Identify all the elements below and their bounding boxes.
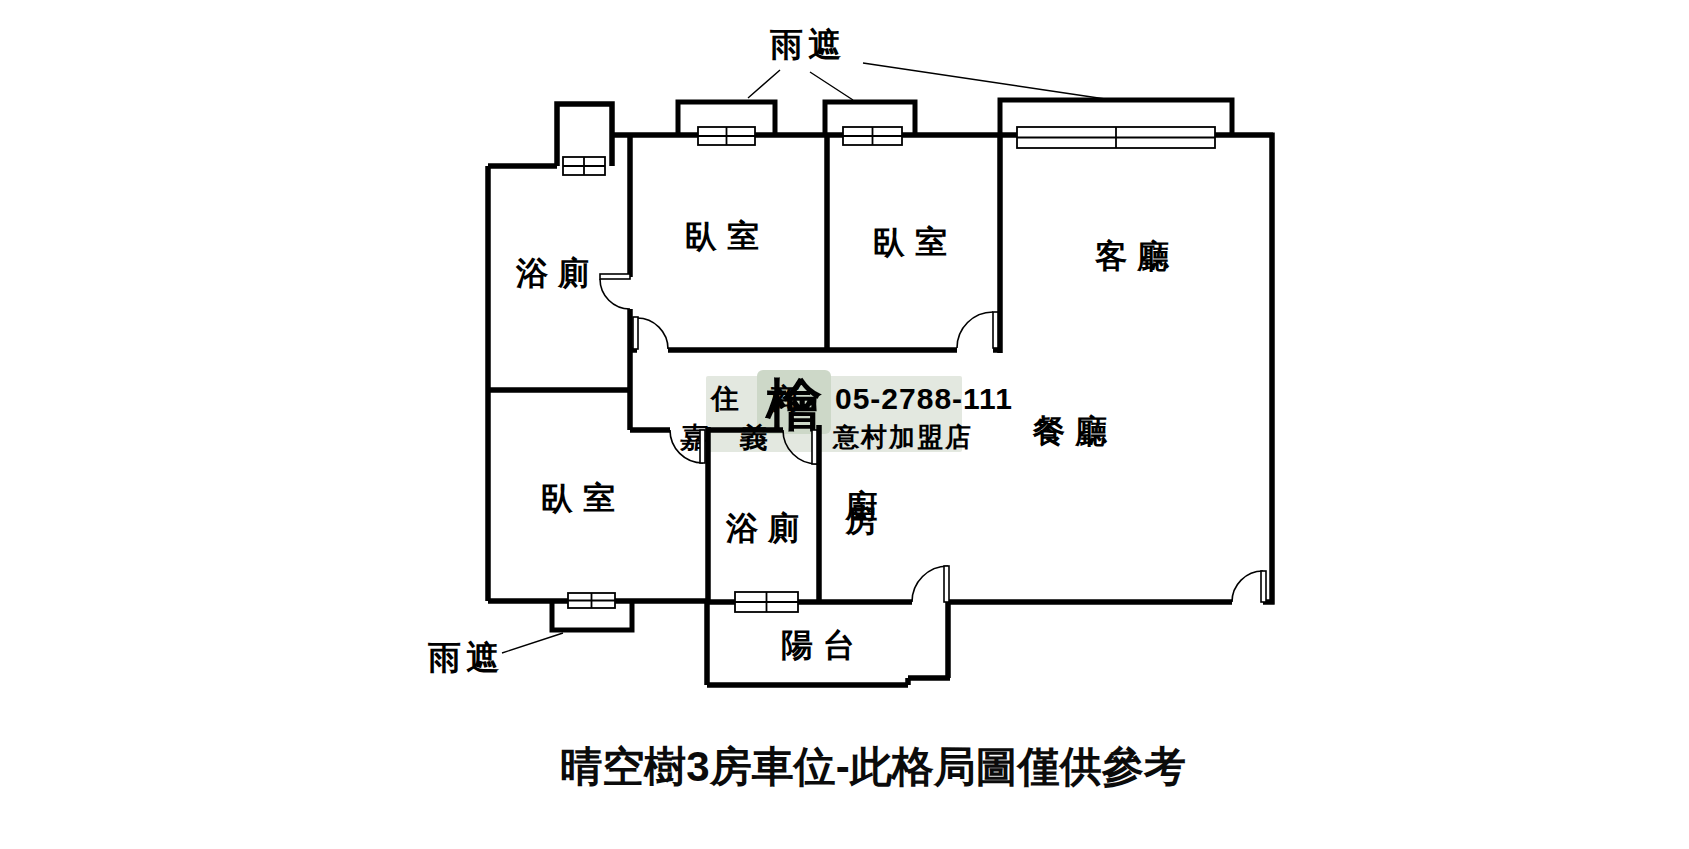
window-living-room [1017,127,1215,148]
door-arc-bedroom-top-left [637,318,668,349]
door-leaf-bedroom-top-left [633,317,638,349]
label-bedroom-top-right: 臥室 [873,224,957,260]
label-bedroom-bottom: 臥室 [541,480,625,516]
label-rain-shelter-top: 雨遮 [769,26,846,63]
watermark: 檜 住 商 05-2788-111 嘉 義 意村加盟店 [679,370,1013,453]
door-leaf-entry [1261,571,1266,602]
rain-shelter-outlines [552,100,1232,630]
label-kitchen: 廚房 [844,462,880,536]
label-bathroom-top: 浴廁 [515,255,600,291]
window-bathroom-bottom [735,592,798,612]
door-leaf-balcony [944,566,949,602]
label-rain-shelter-bottom: 雨遮 [427,639,504,676]
window-bathroom-top [563,157,605,175]
door-leaf-bathroom-bottom [812,430,817,464]
watermark-brand-row1: 住 商 [709,383,811,414]
label-bedroom-top-left: 臥室 [685,218,769,254]
door-arc-entry [1232,571,1263,602]
window-bedroom-top-right [843,127,902,145]
door-arc-bathroom-top [600,279,630,309]
watermark-brand-row2: 嘉 義 [679,422,781,453]
window-bedroom-bottom [568,593,615,608]
label-balcony: 陽台 [781,627,865,663]
label-dining-room: 餐廳 [1032,413,1117,449]
pointer-lines [502,63,1112,653]
door-arc-bedroom-top-right [957,312,993,348]
watermark-store: 意村加盟店 [832,422,973,452]
door-leaf-bedroom-top-right [993,312,998,348]
label-bathroom-bottom: 浴廁 [725,510,810,546]
label-living-room: 客廳 [1094,238,1179,274]
window-bedroom-top-left [698,127,755,145]
floor-plan-svg: 檜 住 商 05-2788-111 嘉 義 意村加盟店 [0,0,1689,849]
floor-plan-page: 檜 住 商 05-2788-111 嘉 義 意村加盟店 [0,0,1689,849]
door-leaf-bedroom-bottom [700,430,705,463]
plan-title: 晴空樹3房車位-此格局圖僅供參考 [560,743,1185,790]
windows [563,127,1215,612]
watermark-phone: 05-2788-111 [835,382,1013,415]
door-leaf-bathroom-top [600,274,630,279]
door-arc-balcony [912,566,948,602]
